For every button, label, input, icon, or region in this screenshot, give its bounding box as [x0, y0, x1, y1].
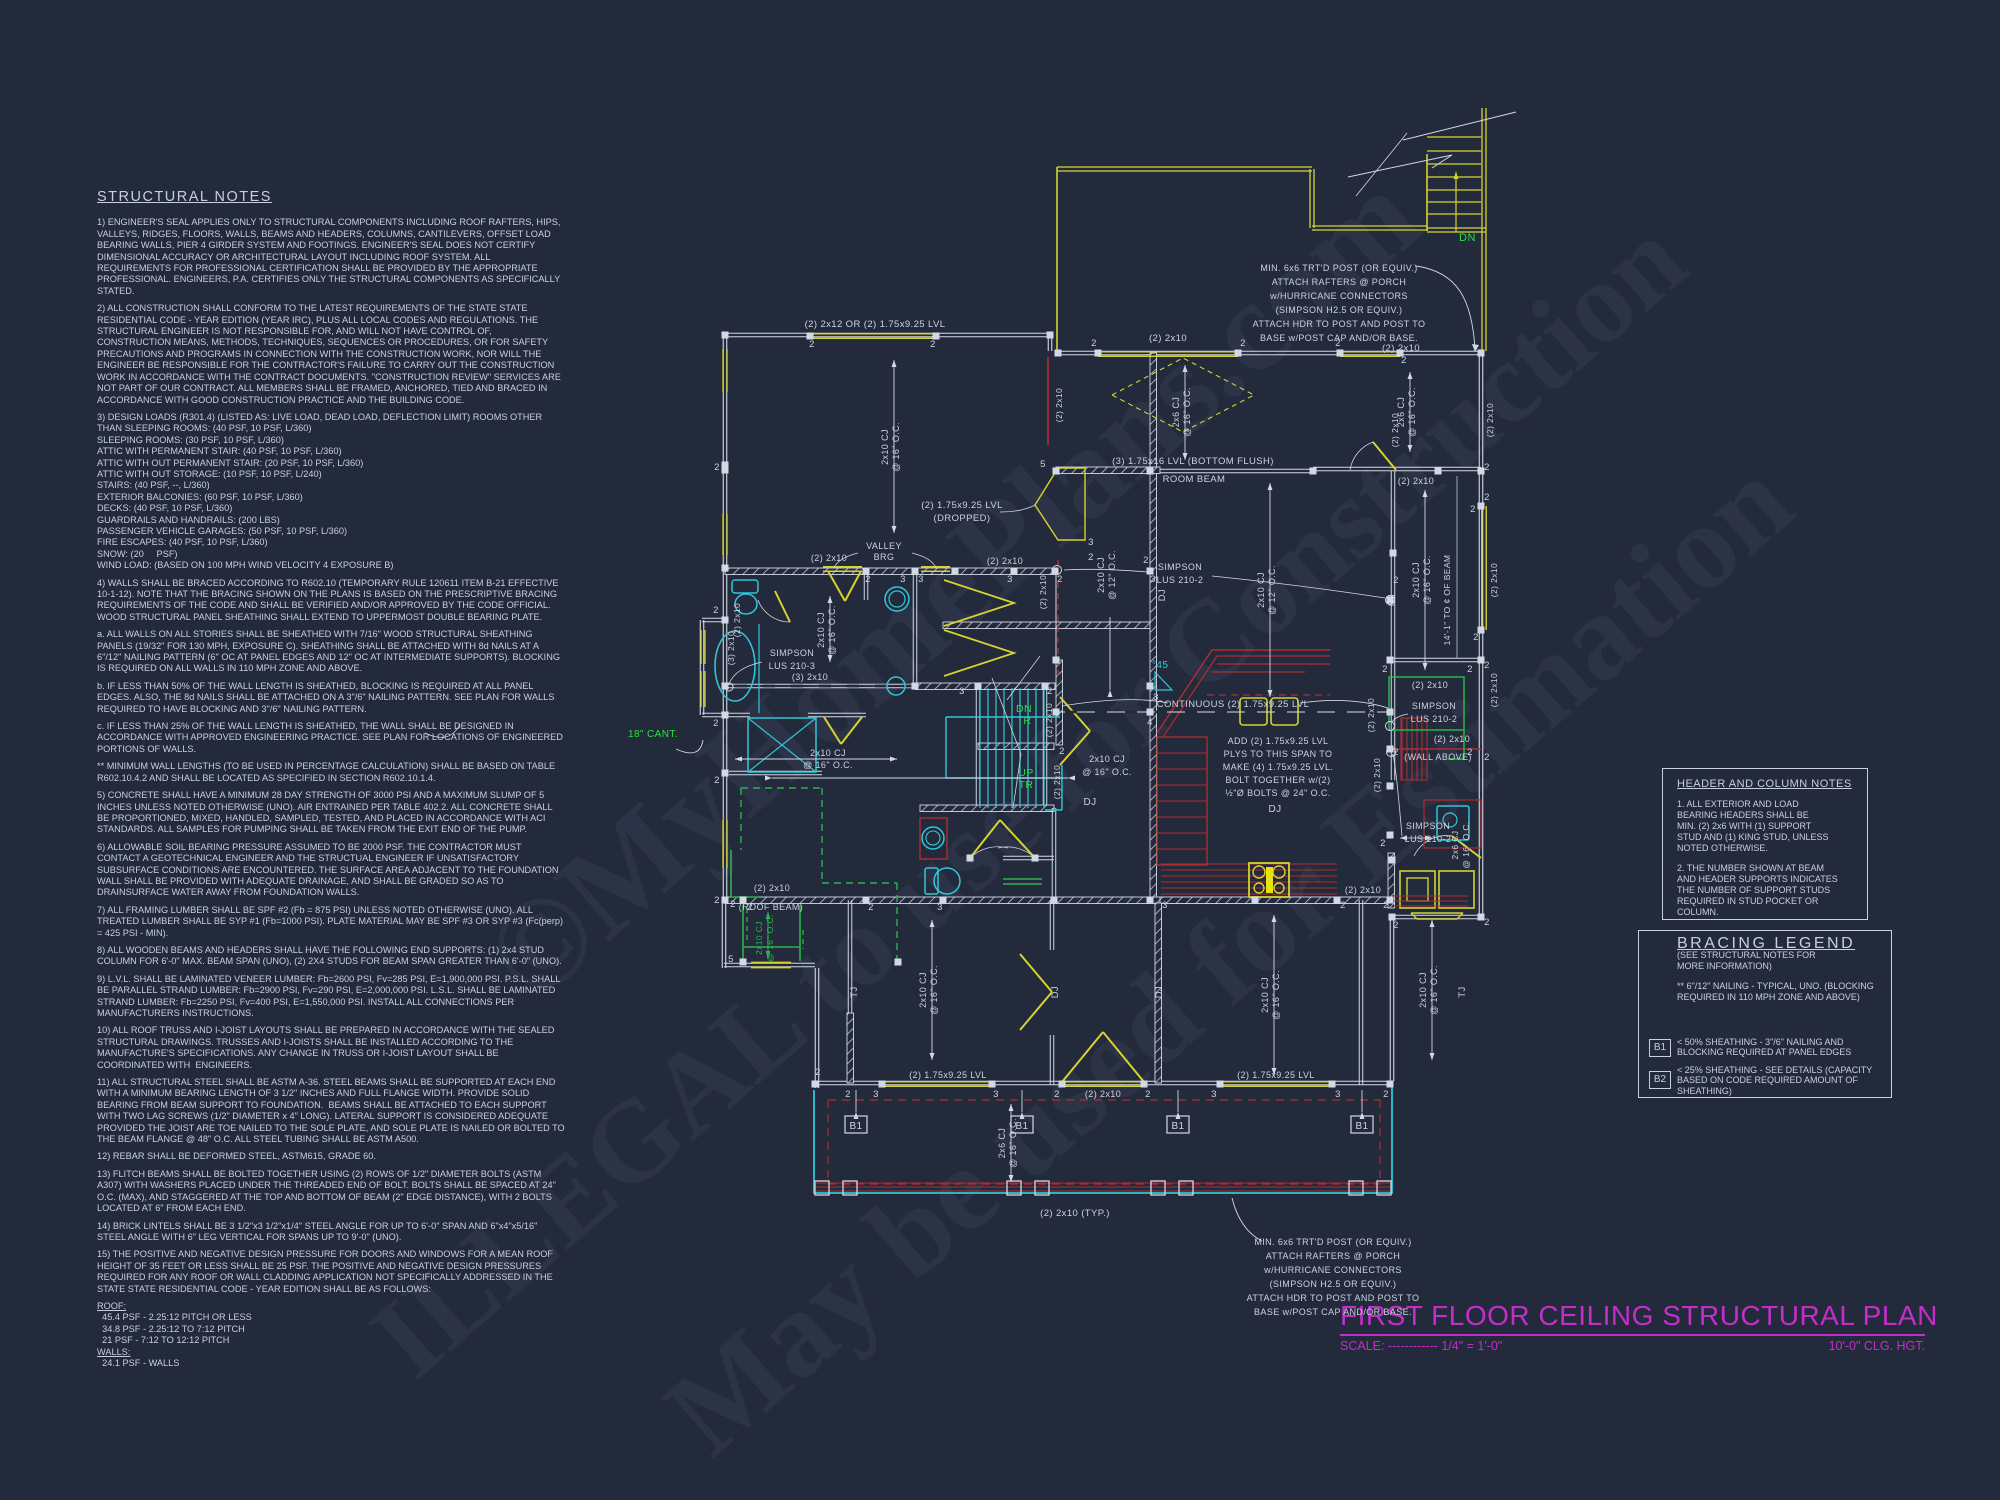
svg-text:TR: TR [1017, 715, 1032, 727]
svg-text:(2) 2x10: (2) 2x10 [1489, 673, 1499, 707]
svg-text:2x10 CJ: 2x10 CJ [1089, 754, 1125, 764]
svg-text:3: 3 [900, 574, 906, 585]
svg-text:2x10 CJ: 2x10 CJ [1256, 572, 1266, 608]
svg-text:(2) 2x10: (2) 2x10 [1038, 575, 1048, 609]
svg-text:(3) 2x10: (3) 2x10 [792, 672, 828, 682]
svg-text:2: 2 [1467, 747, 1473, 758]
svg-text:2: 2 [730, 899, 736, 910]
svg-text:2: 2 [1380, 838, 1386, 849]
svg-text:2: 2 [713, 718, 719, 729]
svg-text:ROOM BEAM: ROOM BEAM [1163, 474, 1226, 485]
svg-text:@ 16" O.C.: @ 16" O.C. [827, 605, 837, 655]
svg-text:5: 5 [1040, 459, 1046, 470]
svg-text:3: 3 [1007, 574, 1013, 585]
svg-text:18" CANT.: 18" CANT. [628, 729, 678, 740]
svg-text:DJ: DJ [1050, 986, 1061, 998]
svg-text:(2) 2x10: (2) 2x10 [1052, 765, 1062, 799]
svg-text:TJ: TJ [849, 986, 860, 997]
svg-text:½"Ø BOLTS @ 24" O.C.: ½"Ø BOLTS @ 24" O.C. [1225, 788, 1330, 798]
svg-text:2: 2 [1047, 686, 1053, 697]
svg-text:2: 2 [1470, 504, 1476, 515]
svg-text:B1: B1 [1015, 1121, 1028, 1132]
svg-text:2x10 CJ: 2x10 CJ [1411, 562, 1421, 598]
svg-text:LUS 210-2: LUS 210-2 [1157, 575, 1204, 585]
svg-text:SIMPSON: SIMPSON [1158, 562, 1202, 572]
svg-text:2: 2 [1484, 917, 1490, 928]
svg-text:3: 3 [918, 574, 924, 585]
svg-text:@ 16" O.C.: @ 16" O.C. [1461, 821, 1471, 868]
svg-text:3: 3 [873, 1089, 879, 1100]
svg-text:2: 2 [1393, 747, 1399, 758]
svg-text:2x10 CJ: 2x10 CJ [1096, 557, 1106, 593]
svg-text:(2) 2x10: (2) 2x10 [754, 883, 790, 893]
svg-text:(2) 2x10: (2) 2x10 [1345, 885, 1381, 895]
svg-text:(2) 2x10: (2) 2x10 [1366, 698, 1376, 732]
svg-text:MIN. 6x6 TRT'D POST (OR EQUIV.: MIN. 6x6 TRT'D POST (OR EQUIV.) [1260, 263, 1417, 273]
svg-text:@ 16" O.C.: @ 16" O.C. [929, 965, 939, 1015]
svg-text:(2) 2x10: (2) 2x10 [1489, 563, 1499, 597]
svg-text:ATTACH HDR TO POST AND POST TO: ATTACH HDR TO POST AND POST TO [1253, 319, 1426, 329]
svg-text:2: 2 [1054, 1089, 1060, 1100]
svg-text:(2) 2x10: (2) 2x10 [1149, 333, 1187, 344]
svg-text:(WALL ABOVE): (WALL ABOVE) [1404, 752, 1472, 762]
svg-text:2: 2 [714, 895, 720, 906]
svg-text:PLYS TO THIS SPAN TO: PLYS TO THIS SPAN TO [1224, 749, 1333, 759]
svg-text:3: 3 [1150, 574, 1156, 585]
svg-text:(3) 1.75x16 LVL (BOTTOM FLUSH): (3) 1.75x16 LVL (BOTTOM FLUSH) [1112, 456, 1274, 467]
svg-text:ATTACH RAFTERS @ PORCH: ATTACH RAFTERS @ PORCH [1266, 1251, 1401, 1261]
svg-text:2: 2 [1467, 664, 1473, 675]
svg-text:DJ: DJ [1154, 986, 1165, 998]
svg-text:3: 3 [1162, 900, 1168, 911]
svg-text:LUS 210-3: LUS 210-3 [769, 661, 816, 671]
svg-text:3: 3 [959, 686, 965, 697]
svg-text:2: 2 [1383, 900, 1389, 911]
svg-text:2x10 CJ: 2x10 CJ [1260, 977, 1270, 1013]
svg-text:4: 4 [1147, 717, 1153, 728]
svg-text:MIN. 6x6 TRT'D POST (OR EQUIV.: MIN. 6x6 TRT'D POST (OR EQUIV.) [1254, 1237, 1411, 1247]
svg-text:2: 2 [1484, 492, 1490, 503]
svg-text:TJ: TJ [1457, 986, 1468, 997]
svg-text:2: 2 [747, 902, 753, 913]
svg-text:2: 2 [1145, 1089, 1151, 1100]
svg-text:@ 16" O.C.: @ 16" O.C. [1082, 767, 1132, 777]
svg-text:2: 2 [1484, 752, 1490, 763]
svg-text:2: 2 [1401, 355, 1407, 366]
svg-text:BOLT TOGETHER w/(2): BOLT TOGETHER w/(2) [1226, 775, 1331, 785]
svg-text:SIMPSON: SIMPSON [770, 648, 814, 658]
svg-text:DJ: DJ [1083, 797, 1096, 808]
svg-text:2x6 CJ: 2x6 CJ [1450, 831, 1460, 860]
svg-text:VALLEY: VALLEY [866, 541, 902, 551]
svg-text:2x6 CJ: 2x6 CJ [997, 1128, 1007, 1158]
svg-text:(SIMPSON H2.5 OR EQUIV.): (SIMPSON H2.5 OR EQUIV.) [1270, 1279, 1397, 1289]
svg-text:2: 2 [868, 902, 874, 913]
svg-text:(2) 2x10: (2) 2x10 [1054, 388, 1064, 422]
svg-text:@ 16" O.C.: @ 16" O.C. [1422, 555, 1432, 605]
svg-text:2: 2 [845, 1089, 851, 1100]
svg-text:2: 2 [1057, 574, 1063, 585]
svg-text:2: 2 [1473, 632, 1479, 643]
svg-text:ATTACH HDR TO POST AND POST TO: ATTACH HDR TO POST AND POST TO [1247, 1293, 1420, 1303]
svg-text:2: 2 [930, 339, 936, 350]
svg-text:2: 2 [809, 339, 815, 350]
svg-text:@ 16" O.C.: @ 16" O.C. [765, 914, 775, 961]
svg-text:(SIMPSON H2.5 OR EQUIV.): (SIMPSON H2.5 OR EQUIV.) [1276, 305, 1403, 315]
svg-text:°45: °45 [1152, 660, 1168, 671]
svg-text:(2) 2x10: (2) 2x10 [1085, 1089, 1121, 1099]
svg-text:3: 3 [937, 902, 943, 913]
svg-text:w/HURRICANE CONNECTORS: w/HURRICANE CONNECTORS [1269, 291, 1408, 301]
svg-text:(2) 1.75x9.25 LVL: (2) 1.75x9.25 LVL [921, 500, 1003, 511]
svg-text:@ 16" O.C.: @ 16" O.C. [803, 760, 853, 770]
svg-text:2: 2 [1340, 900, 1346, 911]
svg-text:2: 2 [714, 462, 720, 473]
svg-text:(2) 2x10: (2) 2x10 [1398, 476, 1434, 486]
svg-text:2x10 CJ: 2x10 CJ [810, 748, 846, 758]
svg-text:2: 2 [815, 1067, 821, 1078]
svg-text:2: 2 [1382, 664, 1388, 675]
svg-text:(2) 2x10: (2) 2x10 [987, 556, 1023, 566]
svg-text:3: 3 [1153, 692, 1159, 703]
svg-text:CONTINUOUS (2) 1.75x9.25 LVL: CONTINUOUS (2) 1.75x9.25 LVL [1157, 699, 1310, 710]
svg-text:2: 2 [1484, 462, 1490, 473]
svg-text:@ 12" O.C.: @ 12" O.C. [1267, 565, 1277, 615]
svg-text:2: 2 [1383, 1089, 1389, 1100]
svg-text:DJ: DJ [1268, 804, 1281, 815]
svg-text:DN: DN [1016, 703, 1032, 715]
svg-text:@ 16" O.C.: @ 16" O.C. [1271, 970, 1281, 1020]
svg-text:2: 2 [1484, 660, 1490, 671]
svg-text:(2) 2x10: (2) 2x10 [811, 553, 847, 563]
svg-text:2x10 CJ: 2x10 CJ [918, 972, 928, 1008]
svg-text:2: 2 [1335, 338, 1341, 349]
svg-text:2x10 CJ: 2x10 CJ [880, 429, 890, 465]
svg-text:2: 2 [865, 574, 871, 585]
svg-text:LUS 210-2: LUS 210-2 [1405, 834, 1452, 844]
svg-text:DJ: DJ [1157, 589, 1168, 601]
svg-text:3: 3 [1088, 537, 1094, 548]
svg-text:B1: B1 [1355, 1121, 1368, 1132]
svg-text:2: 2 [1240, 338, 1246, 349]
svg-text:TR: TR [1019, 779, 1034, 791]
svg-text:2: 2 [1393, 575, 1399, 586]
svg-text:BRG: BRG [874, 552, 895, 562]
svg-text:ADD (2) 1.75x9.25 LVL: ADD (2) 1.75x9.25 LVL [1228, 736, 1329, 746]
svg-text:(2) 2x10: (2) 2x10 [1412, 680, 1448, 690]
svg-text:2x10 CJ: 2x10 CJ [816, 612, 826, 648]
svg-text:ATTACH RAFTERS @ PORCH: ATTACH RAFTERS @ PORCH [1272, 277, 1407, 287]
svg-text:2: 2 [714, 775, 720, 786]
svg-text:2: 2 [1091, 338, 1097, 349]
svg-text:(2) 2x10 (TYP.): (2) 2x10 (TYP.) [1040, 1208, 1110, 1219]
svg-text:3: 3 [1211, 1089, 1217, 1100]
svg-text:3: 3 [1335, 1089, 1341, 1100]
svg-text:2x10 CJ: 2x10 CJ [754, 921, 764, 955]
svg-text:@ 16" O.C.: @ 16" O.C. [891, 422, 901, 472]
svg-text:5: 5 [728, 954, 734, 965]
svg-text:B1: B1 [849, 1121, 862, 1132]
svg-text:2: 2 [1143, 555, 1149, 566]
svg-text:2: 2 [1059, 746, 1065, 757]
svg-text:14'-1" TO ¢ OF BEAM: 14'-1" TO ¢ OF BEAM [1442, 555, 1452, 646]
svg-text:(2) 2x12 OR (2) 1.75x9.25 LVL: (2) 2x12 OR (2) 1.75x9.25 LVL [805, 319, 946, 330]
svg-text:3: 3 [993, 1089, 999, 1100]
svg-text:SIMPSON: SIMPSON [1412, 701, 1456, 711]
svg-text:SIMPSON: SIMPSON [1406, 821, 1450, 831]
svg-text:(2) 1.75x9.25 LVL: (2) 1.75x9.25 LVL [1237, 1070, 1315, 1080]
svg-text:@ 16" O.C.: @ 16" O.C. [1429, 965, 1439, 1015]
svg-text:(2) 2x10: (2) 2x10 [1372, 758, 1382, 792]
svg-text:(2) 2x10: (2) 2x10 [732, 603, 742, 637]
svg-text:(2) 2x10: (2) 2x10 [1434, 734, 1470, 744]
svg-text:(2) 1.75x9.25 LVL: (2) 1.75x9.25 LVL [909, 1070, 987, 1080]
svg-text:UP: UP [1018, 767, 1033, 779]
svg-text:B1: B1 [1171, 1121, 1184, 1132]
svg-text:(DROPPED): (DROPPED) [934, 513, 991, 524]
svg-text:BASE w/POST CAP AND/OR BASE.: BASE w/POST CAP AND/OR BASE. [1254, 1307, 1412, 1317]
svg-text:2: 2 [713, 605, 719, 616]
svg-text:w/HURRICANE CONNECTORS: w/HURRICANE CONNECTORS [1263, 1265, 1402, 1275]
svg-text:(2) 2x10: (2) 2x10 [1390, 413, 1400, 447]
svg-text:2x6 CJ: 2x6 CJ [1171, 397, 1181, 427]
svg-text:@ 16" O.C.: @ 16" O.C. [1182, 387, 1192, 437]
svg-text:DN: DN [1459, 232, 1476, 244]
svg-text:2: 2 [1393, 920, 1399, 931]
svg-text:LUS 210-2: LUS 210-2 [1411, 714, 1458, 724]
svg-text:2x10 CJ: 2x10 CJ [1418, 972, 1428, 1008]
svg-text:@ 12" O.C.: @ 12" O.C. [1107, 550, 1117, 600]
svg-text:(2) 2x10: (2) 2x10 [1485, 403, 1495, 437]
svg-text:MAKE (4) 1.75x9.25 LVL.: MAKE (4) 1.75x9.25 LVL. [1223, 762, 1334, 772]
svg-text:(2) 2x10: (2) 2x10 [1044, 703, 1054, 737]
svg-text:2: 2 [1088, 552, 1094, 563]
svg-text:@ 16" O.C.: @ 16" O.C. [1407, 387, 1417, 437]
